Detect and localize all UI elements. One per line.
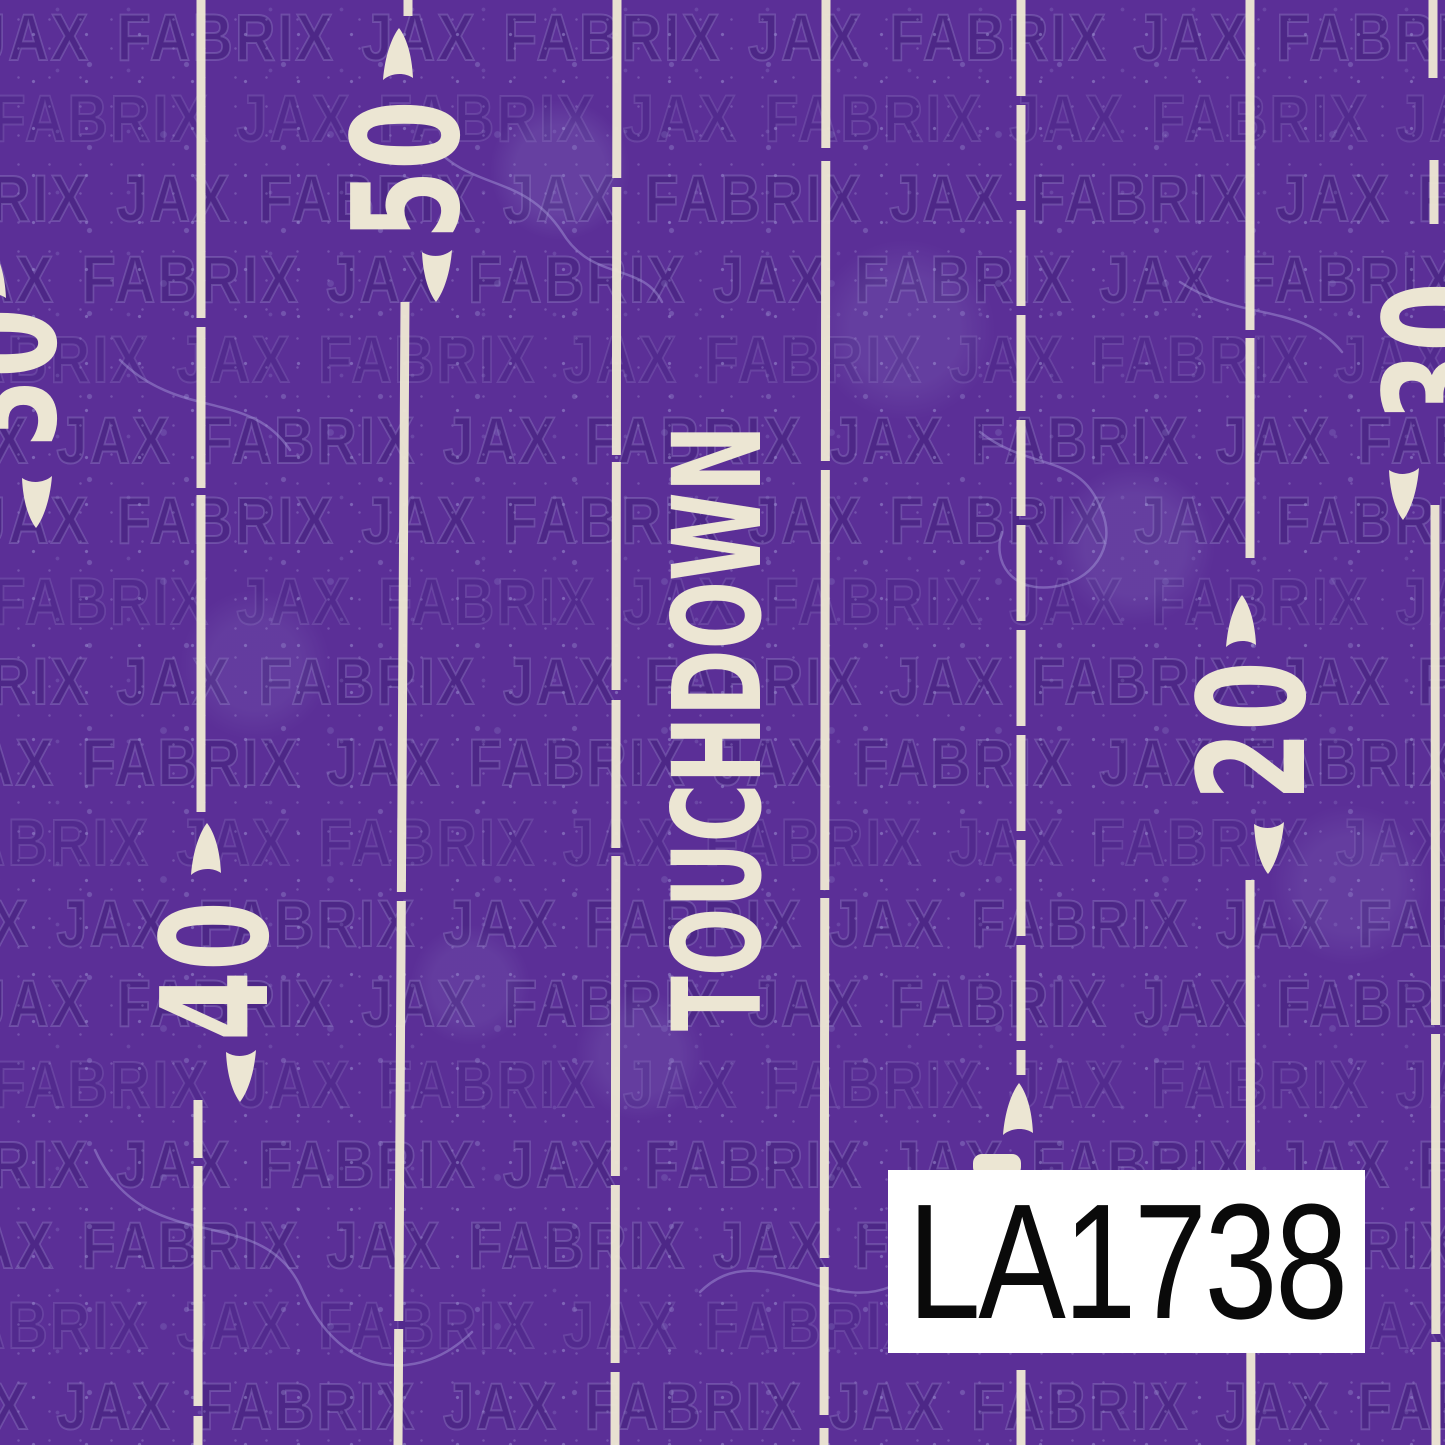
yard-number-30-left-edge: 30 [0,308,90,448]
yard-arrow-down-icon [1389,468,1419,520]
yard-arrow-up-icon [191,823,221,875]
yard-arrow-down-icon [226,1050,256,1102]
product-code-label: LA1738 [888,1170,1365,1353]
yard-arrow-up-icon [383,28,413,80]
fabric-swatch: JAX FABRIX JAX FABRIX JAX FABRIX JAX FAB… [0,0,1445,1445]
yard-line [1250,880,1251,1445]
yard-number-30-right-edge: 30 [1353,282,1445,422]
yard-number-texts: 50 40 20 30 30 TOUCHDOWN [0,100,1445,1041]
yard-arrow-down-icon [22,476,52,528]
yard-line [398,302,405,1445]
yard-arrow-down-icon [1254,822,1284,874]
yard-line [1435,505,1436,1445]
yard-line [824,0,826,1445]
yard-number-40: 40 [130,901,302,1041]
yard-arrow-up-icon [0,248,6,300]
product-code-text: LA1738 [908,1168,1346,1356]
yard-arrow-down-icon [422,250,452,302]
yard-arrow-up-icon [1226,595,1256,647]
yard-number-50: 50 [321,100,493,240]
touchdown-text: TOUCHDOWN [647,425,789,1031]
yard-arrow-up-icon [1003,1083,1033,1135]
yard-number-20: 20 [1167,661,1339,801]
yard-line [615,0,617,1445]
